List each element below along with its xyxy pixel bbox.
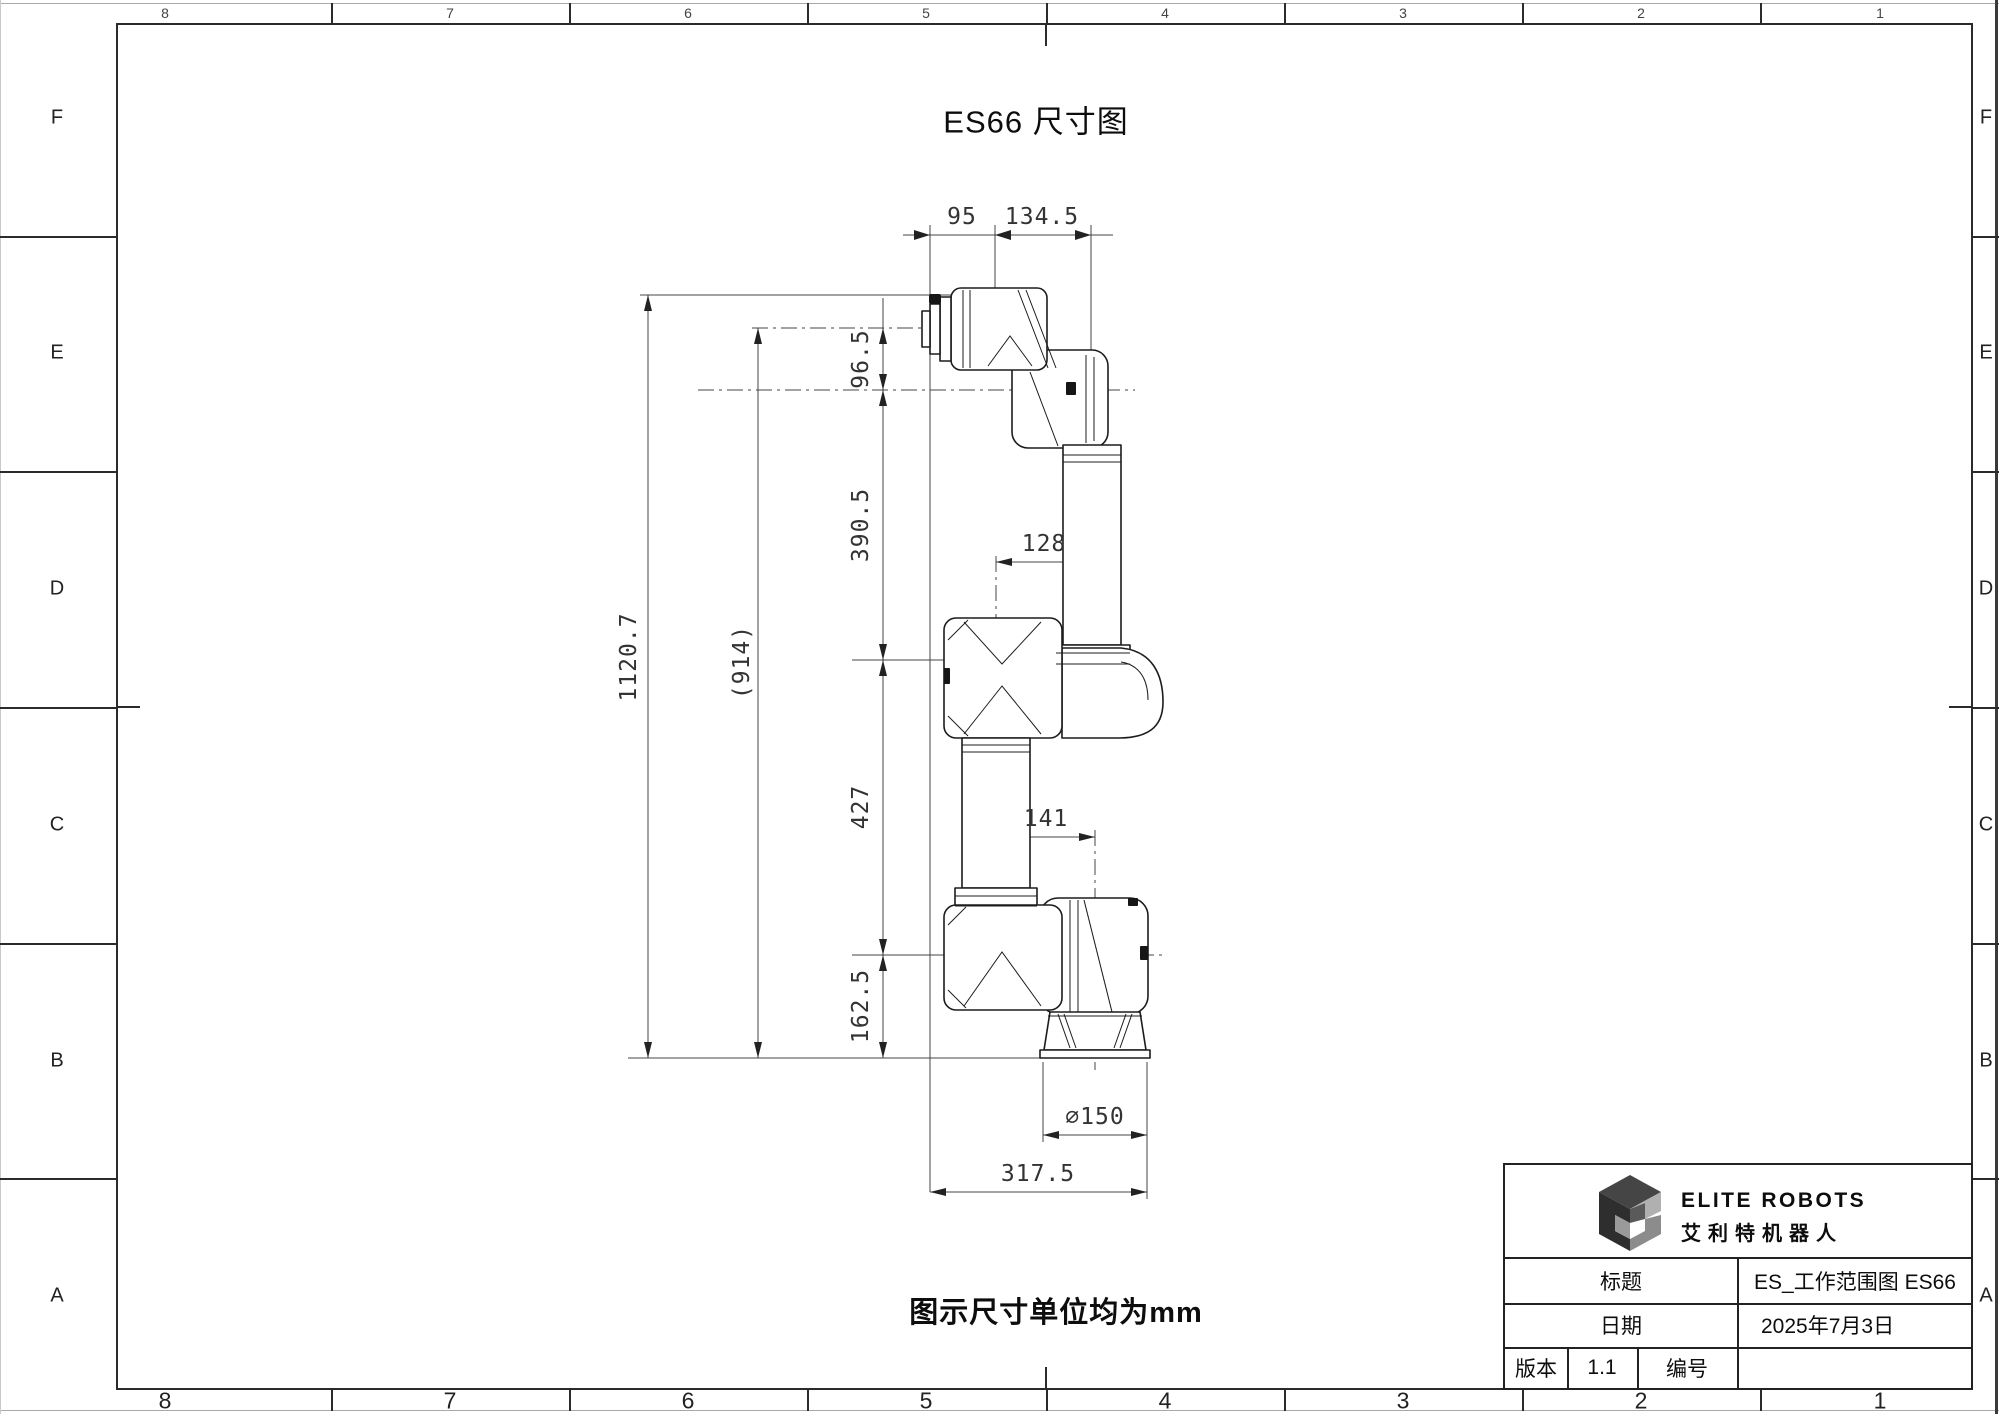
title-block-line [1737, 1257, 1739, 1388]
date-label: 日期 [1600, 1310, 1642, 1340]
title-block-line [1567, 1347, 1569, 1388]
dim-317-5: 317.5 [1001, 1161, 1075, 1187]
dim-134-5: 134.5 [1005, 204, 1079, 230]
title-block: ELITE ROBOTS 艾利特机器人 标题 ES_工作范围图 ES66 日期 … [1503, 1163, 1973, 1390]
dim-95: 95 [947, 204, 977, 230]
dim-1120-7: 1120.7 [616, 612, 642, 701]
version-value: 1.1 [1587, 1356, 1616, 1380]
version-label: 版本 [1515, 1353, 1557, 1383]
title-value: ES_工作范围图 ES66 [1754, 1266, 1956, 1296]
drawing-sheet: 8 7 6 5 4 3 2 1 8 7 6 5 4 3 2 1 F E D C … [0, 0, 1999, 1414]
dim-162-5: 162.5 [848, 969, 874, 1043]
dim-128: 128 [1022, 531, 1067, 557]
dim-914: (914) [729, 625, 755, 699]
title-block-line [1637, 1347, 1639, 1388]
brand-name-cn: 艾利特机器人 [1681, 1217, 1843, 1246]
number-label: 编号 [1666, 1353, 1708, 1383]
title-label: 标题 [1600, 1266, 1642, 1296]
dim-390-5: 390.5 [848, 488, 874, 562]
dim-dia-150: ∅150 [1065, 1104, 1124, 1130]
date-value: 2025年7月3日 [1761, 1310, 1894, 1340]
brand-name-en: ELITE ROBOTS [1681, 1189, 1866, 1213]
dim-141: 141 [1024, 806, 1069, 832]
dim-96-5: 96.5 [848, 329, 874, 388]
elite-robots-logo-icon [1595, 1171, 1665, 1253]
dim-427: 427 [848, 785, 874, 830]
